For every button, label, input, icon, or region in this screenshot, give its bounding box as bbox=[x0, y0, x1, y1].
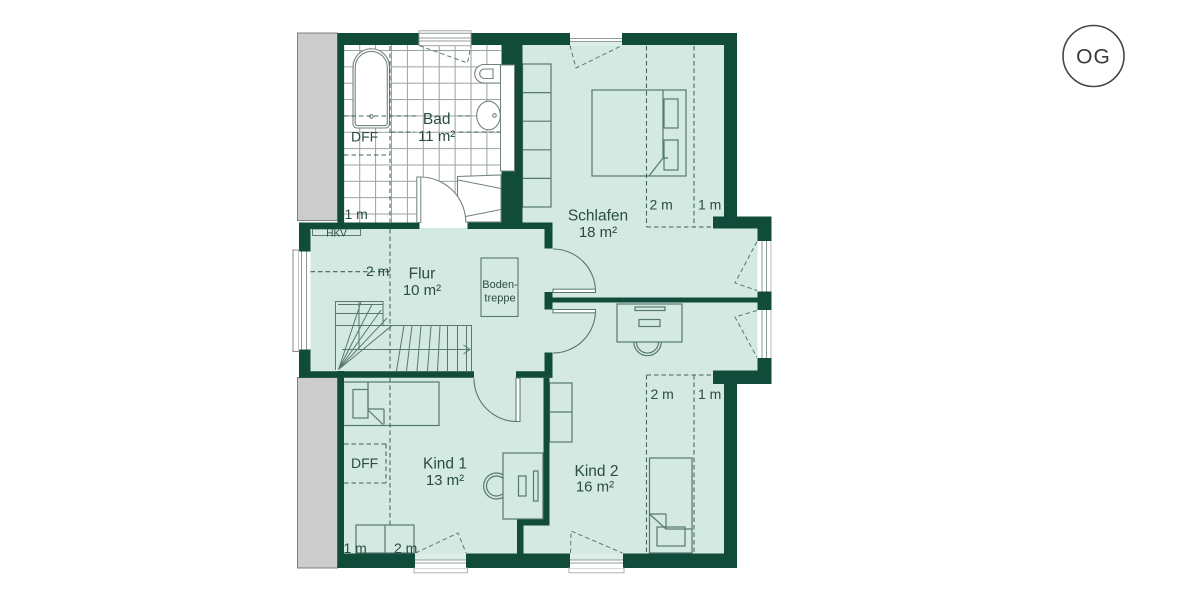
svg-text:2 m: 2 m bbox=[366, 263, 389, 279]
svg-text:DFF: DFF bbox=[351, 455, 378, 471]
svg-text:13 m²: 13 m² bbox=[426, 472, 464, 489]
svg-text:1 m: 1 m bbox=[698, 197, 721, 213]
svg-text:2 m: 2 m bbox=[650, 197, 673, 213]
svg-text:1 m: 1 m bbox=[345, 206, 368, 222]
svg-text:18 m²: 18 m² bbox=[579, 224, 617, 241]
svg-text:OG: OG bbox=[1076, 46, 1111, 69]
svg-text:2 m: 2 m bbox=[651, 386, 674, 402]
svg-text:2 m: 2 m bbox=[394, 540, 417, 556]
svg-text:Kind 2: Kind 2 bbox=[575, 463, 619, 480]
svg-text:10 m²: 10 m² bbox=[403, 282, 441, 299]
svg-text:HKV: HKV bbox=[326, 229, 347, 240]
svg-text:Flur: Flur bbox=[409, 266, 436, 283]
svg-text:Boden-: Boden- bbox=[482, 279, 518, 291]
svg-text:16 m²: 16 m² bbox=[576, 479, 614, 496]
svg-text:Bad: Bad bbox=[423, 111, 451, 128]
svg-text:1 m: 1 m bbox=[698, 386, 721, 402]
svg-text:treppe: treppe bbox=[484, 293, 515, 305]
svg-text:11 m²: 11 m² bbox=[418, 128, 455, 145]
svg-text:1 m: 1 m bbox=[344, 540, 367, 556]
svg-text:Schlafen: Schlafen bbox=[568, 208, 628, 225]
svg-text:DFF: DFF bbox=[351, 129, 378, 145]
svg-text:Kind 1: Kind 1 bbox=[423, 456, 467, 473]
